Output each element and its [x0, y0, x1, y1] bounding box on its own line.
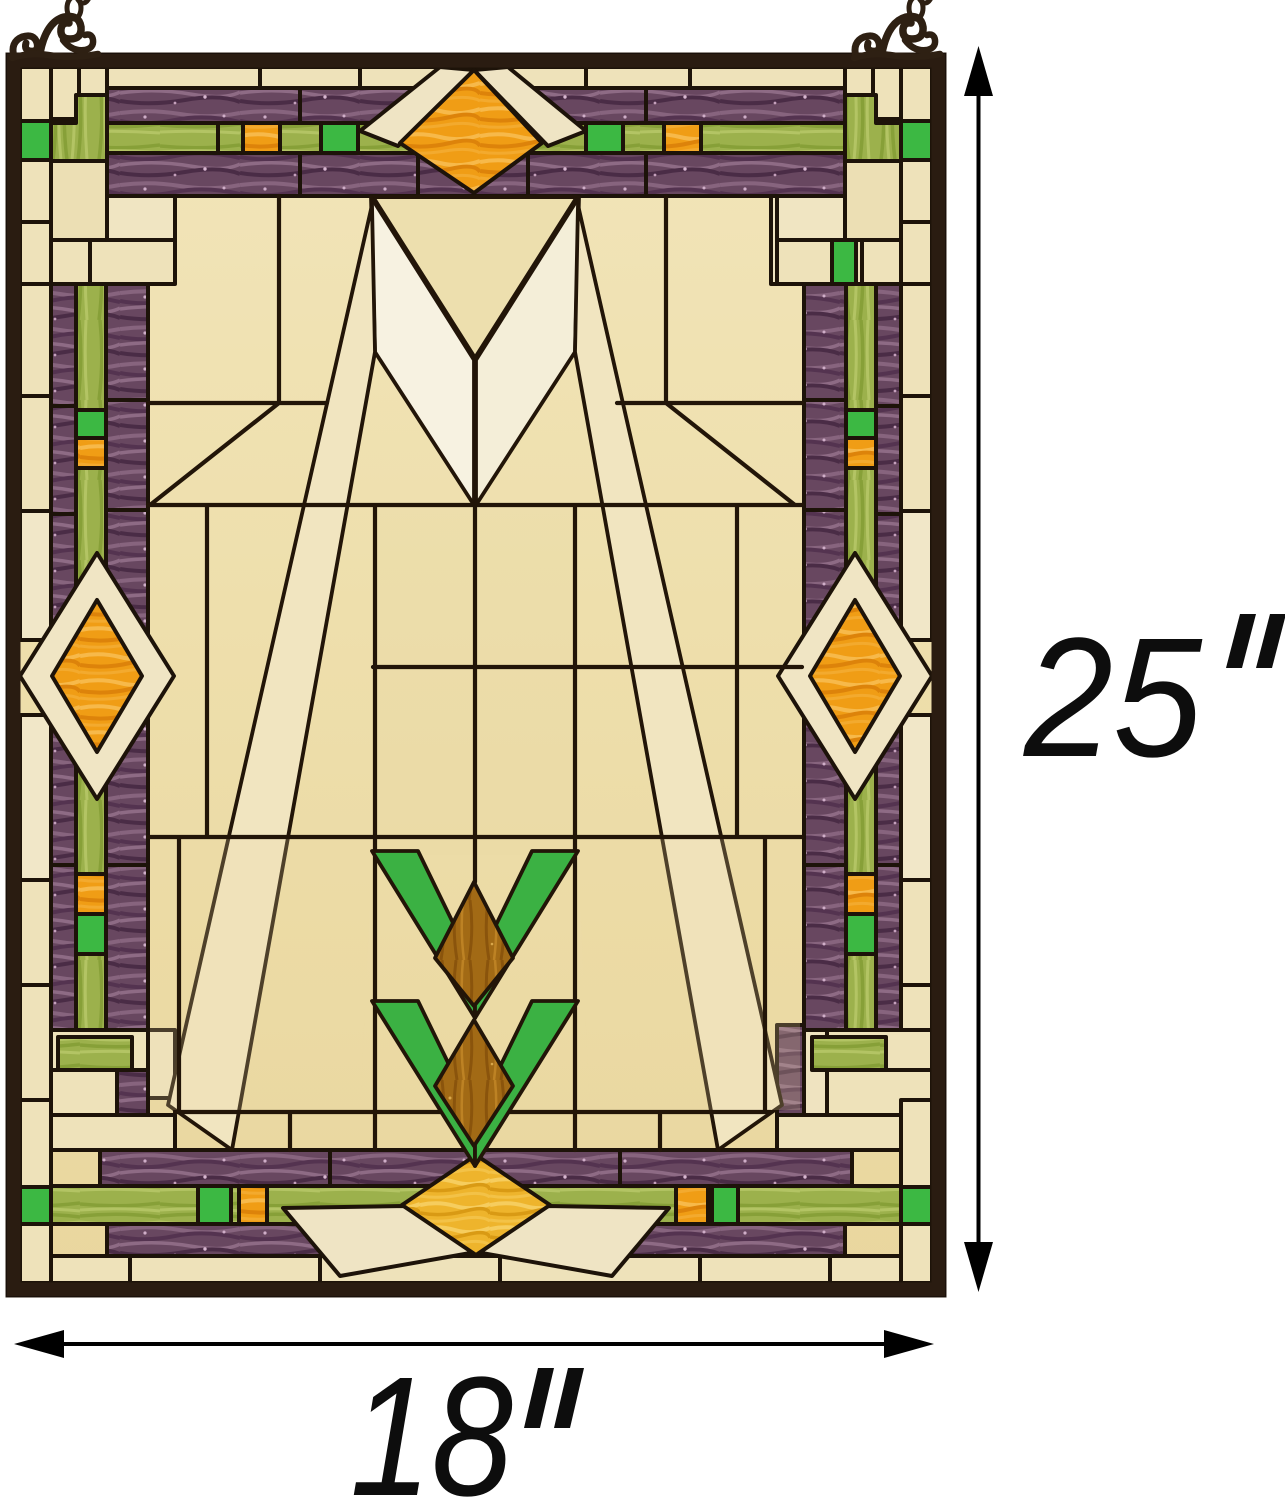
svg-text:18: 18 — [350, 1342, 513, 1500]
svg-text:25: 25 — [1023, 603, 1202, 793]
